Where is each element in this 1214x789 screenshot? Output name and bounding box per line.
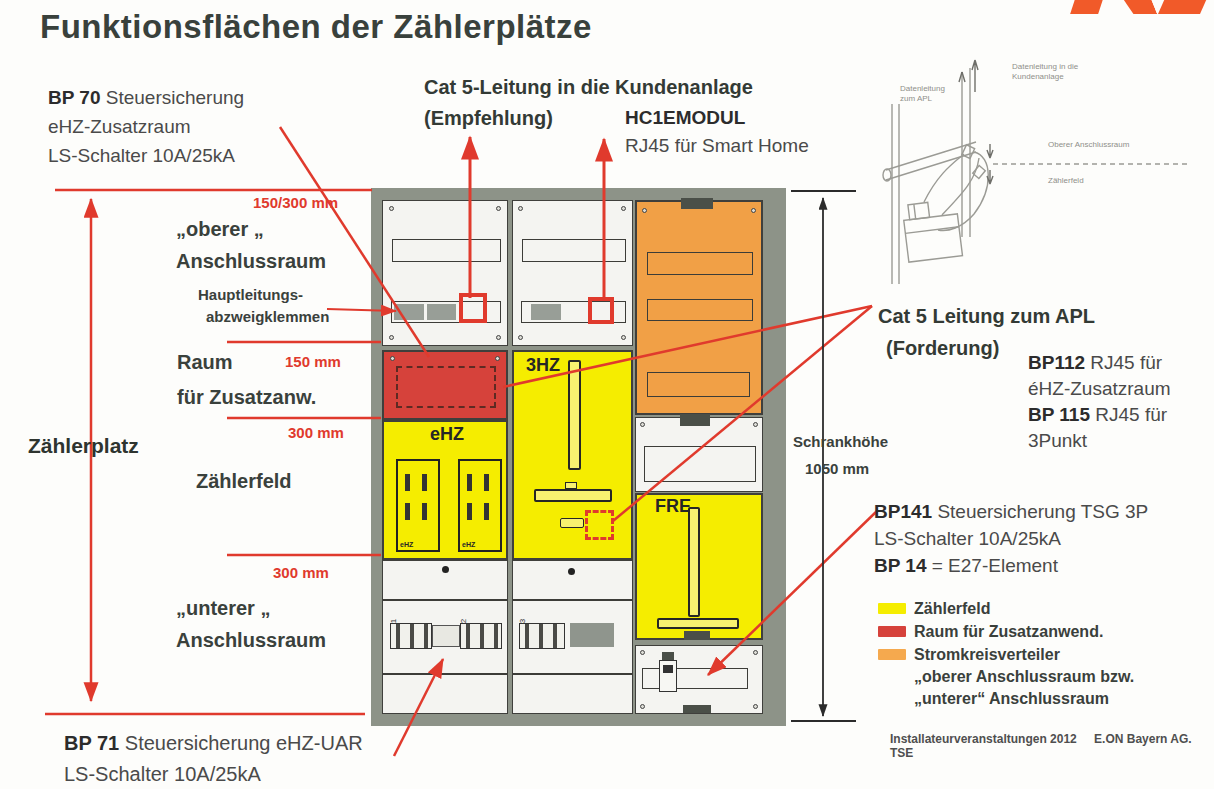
zusatz-slot-dashed — [396, 366, 496, 408]
meter-crossbar — [657, 618, 739, 629]
legend: Zählerfeld Raum für Zusatzanwend. Stromk… — [878, 597, 1134, 710]
meter-rail — [688, 507, 700, 617]
panel-right-middle — [635, 417, 763, 492]
mounting-clamp — [680, 414, 710, 426]
meter-crossbar — [534, 489, 612, 502]
panel-stromkreisverteiler — [635, 200, 763, 415]
page-title: Funktionsflächen der Zählerplätze — [40, 8, 592, 46]
panel-zaehlerfeld-3hz: 3HZ — [512, 350, 633, 560]
cable-slot — [644, 446, 756, 482]
cable-slot — [642, 668, 748, 689]
dim-150: 150 mm — [285, 353, 341, 370]
sketch-label: Datenleitungzum APL — [900, 84, 945, 104]
ls-schalter — [519, 623, 565, 649]
hauptleitungsklemme — [531, 304, 561, 320]
panel-oberer-anschlussraum-mid — [512, 200, 633, 346]
legend-swatch-red — [878, 626, 906, 637]
hauptleitungsklemmen-label: Hauptleitungs-abzweigklemmen — [198, 284, 329, 328]
bp112-note: BP112 RJ45 für éHZ-Zusatzraum BP 115 RJ4… — [1028, 350, 1171, 454]
panel-zaehlerfeld-ehz: eHZ eHZ eHZ — [382, 420, 508, 560]
legend-swatch-orange — [878, 649, 906, 660]
mounting-clamp — [683, 705, 711, 713]
breaker-gap — [432, 625, 460, 647]
sketch-label: Datenleitung in dieKundenanlage — [1012, 62, 1078, 82]
schrankhoehe-label: Schrankhöhe1050 mm — [793, 428, 888, 482]
device-cap — [662, 652, 674, 660]
meter-rail — [568, 360, 581, 470]
blank-cover — [570, 623, 614, 647]
ls-schalter — [460, 623, 502, 649]
zaehlerfeld-label: Zählerfeld — [196, 465, 292, 497]
eon-logo-fragment — [1070, 0, 1214, 16]
meter-label: eHZ — [400, 541, 413, 548]
logo-stroke-icon — [1158, 0, 1214, 14]
ehz-meter: eHZ — [396, 459, 440, 552]
cable-slot — [392, 239, 501, 262]
dim-300a: 300 mm — [288, 424, 344, 441]
hc1emodul-highlight-box — [588, 297, 614, 324]
raum-label: Raum — [177, 346, 233, 378]
panel-unterer-anschlussraum-right — [635, 645, 763, 714]
meter-cabinet: eHZ eHZ eHZ 3HZ FRE — [371, 188, 786, 726]
legend-item: Zählerfeld — [878, 597, 1134, 620]
panel-unterer-anschlussraum-left: F1 F2 — [382, 560, 508, 714]
bp70-highlight-box — [459, 293, 487, 323]
legend-swatch-yellow — [878, 603, 906, 614]
panel-zusatzanwendungen — [382, 350, 508, 420]
3hz-label: 3HZ — [526, 355, 560, 376]
panel-oberer-anschlussraum-left — [382, 200, 508, 346]
mounting-clamp — [684, 631, 710, 640]
cat5-apl-highlight-box — [585, 510, 614, 540]
zaehlerplatz-label: Zählerplatz — [28, 434, 139, 458]
hauptleitungsklemme — [394, 304, 424, 320]
bp141-device — [659, 660, 677, 692]
bp70-note: BP 70 Steuersicherung eHZ-Zusatzraum LS-… — [48, 83, 244, 170]
legend-item: Raum für Zusatzanwend. — [878, 620, 1134, 643]
raum-label-2: für Zusatzanw. — [177, 381, 316, 413]
distribution-slot — [647, 252, 753, 275]
panel-unterer-anschlussraum-mid: F3 — [512, 560, 633, 714]
bp141-note: BP141 Steuersicherung TSG 3P LS-Schalter… — [874, 498, 1148, 579]
cable-slot — [522, 239, 626, 262]
scanned-slide: { "title": "Funktionsflächen der Zählerp… — [0, 0, 1214, 789]
distribution-slot — [647, 372, 750, 397]
bp71-note: BP 71 Steuersicherung eHZ-UAR LS-Schalte… — [64, 728, 363, 789]
unterer-anschlussraum-label: „unterer „Anschlussraum — [176, 592, 326, 656]
legend-extra-line: „oberer Anschlussraum bzw. — [914, 666, 1134, 688]
sketch-label: Zählerfeld — [1048, 176, 1084, 186]
distribution-slot — [647, 299, 753, 321]
ehz-label: eHZ — [430, 424, 464, 445]
mounting-clamp — [681, 198, 713, 209]
legend-extra-line: „unterer“ Anschlussraum — [914, 688, 1134, 710]
rail-nub — [565, 482, 577, 489]
hauptleitungsklemme — [427, 304, 456, 320]
panel-zaehlerfeld-fre: FRE — [635, 493, 763, 640]
legend-item: Stromkreisverteiler — [878, 643, 1134, 666]
ls-schalter — [390, 623, 432, 649]
dim-150-300: 150/300 mm — [253, 194, 338, 211]
oberer-anschlussraum-label: „oberer „Anschlussraum — [176, 213, 326, 277]
connector-stub — [560, 518, 584, 528]
sketch-label: Oberer Anschlussraum — [1048, 140, 1129, 150]
logo-stroke-icon — [1070, 0, 1110, 14]
hc1emodul-label: HC1EMODULRJ45 für Smart Home — [625, 104, 809, 160]
footer-credit: Installateurveranstaltungen 2012 E.ON Ba… — [890, 732, 1214, 760]
ehz-meter: eHZ — [458, 459, 502, 552]
dim-300b: 300 mm — [273, 564, 329, 581]
meter-label: eHZ — [462, 541, 475, 548]
fre-label: FRE — [655, 496, 691, 517]
logo-stroke-icon — [1109, 0, 1158, 14]
